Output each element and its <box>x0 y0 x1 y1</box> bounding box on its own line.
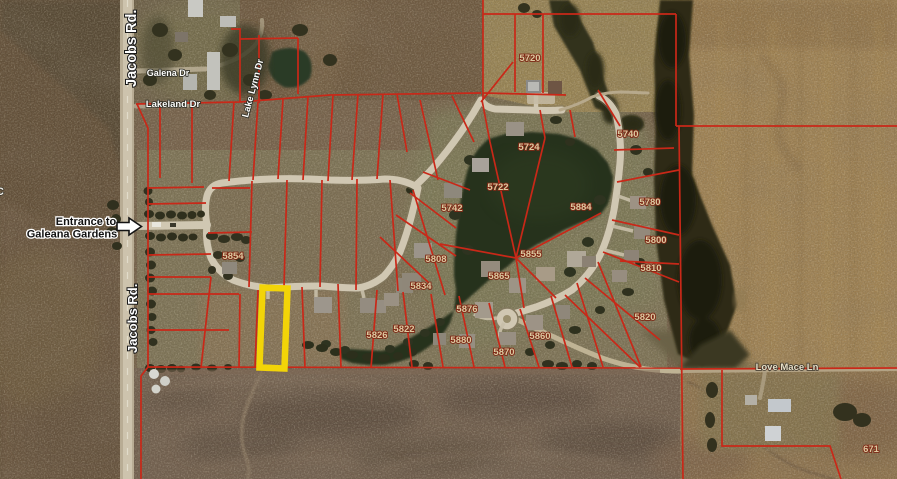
svg-text:5722: 5722 <box>487 182 508 193</box>
svg-text:5808: 5808 <box>425 254 446 265</box>
svg-text:Lakeland Dr: Lakeland Dr <box>146 99 201 110</box>
svg-text:5720: 5720 <box>519 53 540 64</box>
svg-text:5826: 5826 <box>366 330 387 341</box>
svg-text:Galeana Gardens: Galeana Gardens <box>27 229 118 241</box>
svg-text:5876: 5876 <box>456 304 477 315</box>
svg-text:Love Mace Ln: Love Mace Ln <box>756 362 819 373</box>
svg-text:Entrance to: Entrance to <box>56 216 117 228</box>
svg-text:5724: 5724 <box>518 142 540 153</box>
svg-text:C: C <box>0 186 4 198</box>
svg-text:5742: 5742 <box>441 203 462 214</box>
svg-text:5865: 5865 <box>488 271 510 282</box>
svg-text:5800: 5800 <box>645 235 666 246</box>
svg-text:5834: 5834 <box>410 281 432 292</box>
svg-text:5740: 5740 <box>617 129 638 140</box>
svg-text:671: 671 <box>863 444 880 455</box>
svg-text:5855: 5855 <box>520 249 542 260</box>
svg-text:5884: 5884 <box>570 202 592 213</box>
svg-text:Galena Dr: Galena Dr <box>147 68 190 78</box>
svg-text:5822: 5822 <box>393 324 414 335</box>
svg-text:5880: 5880 <box>450 335 471 346</box>
svg-text:5860: 5860 <box>529 331 550 342</box>
svg-text:5810: 5810 <box>640 263 661 274</box>
svg-text:5870: 5870 <box>493 347 514 358</box>
svg-text:Jacobs Rd.: Jacobs Rd. <box>125 284 140 353</box>
svg-text:5780: 5780 <box>639 197 660 208</box>
svg-text:5854: 5854 <box>222 251 244 262</box>
svg-text:5820: 5820 <box>634 312 655 323</box>
svg-text:Jacobs Rd.: Jacobs Rd. <box>124 10 140 87</box>
